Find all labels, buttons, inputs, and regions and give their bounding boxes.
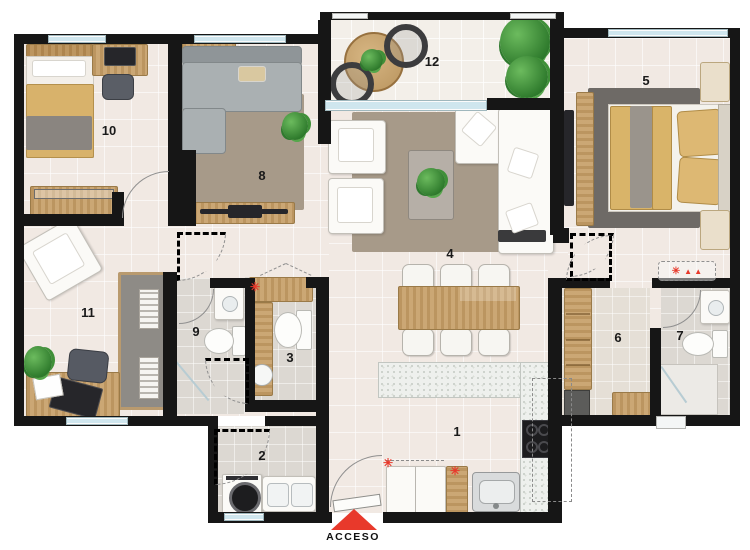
bath9-sink: [214, 286, 244, 320]
desk-monitor: [104, 47, 136, 66]
plant-study: [24, 346, 52, 378]
dining-chair-5: [440, 328, 472, 356]
bath7-toilet-tank: [712, 330, 728, 358]
room-label-10: 10: [97, 123, 121, 138]
window-bedroom-10: [48, 35, 106, 43]
access-arrow-icon: [331, 509, 377, 530]
laundry-sink: [262, 476, 316, 512]
wall: [24, 214, 122, 226]
window-study: [66, 417, 128, 425]
wall: [14, 34, 24, 426]
kitchen-sink: [472, 472, 520, 512]
wall: [163, 272, 177, 416]
wall: [210, 278, 247, 288]
sofa-pillow: [238, 66, 266, 82]
armchair-1-cushion: [338, 128, 374, 162]
wall: [553, 228, 569, 243]
wall: [168, 34, 182, 226]
bath9-toilet-tank: [232, 326, 246, 356]
window-balcony-left: [332, 13, 368, 19]
kitchen-counter-peninsula: [378, 362, 524, 398]
wall: [182, 150, 196, 226]
wall: [318, 20, 331, 144]
desk-chair-study: [66, 348, 109, 384]
bath9-basin: [222, 296, 238, 312]
shelf-divider: [566, 364, 590, 366]
wardrobe-shelves-bottom: [139, 357, 159, 399]
asterisk-icon: ✳: [250, 282, 260, 292]
dining-chair-4: [402, 328, 434, 356]
window-balcony-right: [510, 13, 556, 19]
nightstand-top: [700, 62, 730, 102]
wardrobe-study: [118, 272, 168, 410]
dining-chair-6: [478, 328, 510, 356]
wall: [650, 328, 661, 416]
tv-screen-5: [564, 110, 574, 206]
coffee-table-plant: [417, 168, 445, 196]
window-bedroom-5: [608, 29, 728, 37]
bed5-pillow-bottom: [676, 157, 723, 206]
wall: [316, 277, 329, 517]
wall: [550, 12, 564, 235]
window-bath-7: [656, 416, 686, 429]
wall: [306, 277, 316, 288]
tv-panel-bedroom-5: [576, 92, 594, 226]
room-label-11: 11: [76, 305, 100, 320]
room-label-7: 7: [668, 328, 692, 343]
asterisk-icon: ✳: [672, 266, 680, 277]
room-label-6: 6: [606, 330, 630, 345]
laundry-basin-2: [291, 483, 313, 507]
triangle-icons: ▲ ▲: [684, 267, 702, 276]
balcony-table-plant: [361, 49, 383, 71]
bed-throw: [26, 116, 92, 150]
wall: [548, 415, 740, 426]
shelf-divider: [566, 313, 590, 315]
bath3-toilet-bowl: [274, 312, 302, 348]
room-label-12: 12: [420, 54, 444, 69]
shelf-divider: [566, 339, 590, 341]
fridge-door-split: [415, 467, 416, 513]
bed-pillow: [32, 60, 86, 77]
room-label-1: 1: [445, 424, 469, 439]
laundry-basin-1: [267, 483, 289, 507]
room-label-4: 4: [438, 246, 462, 261]
wall: [383, 512, 557, 523]
nightstand-bottom: [700, 210, 730, 250]
asterisk-icon: ✳: [450, 466, 460, 476]
desk-chair-10: [102, 74, 134, 100]
wall: [487, 98, 563, 110]
bath7-sink: [700, 290, 730, 324]
room-label-3: 3: [278, 350, 302, 365]
balcony-big-plant-lower: [506, 56, 548, 98]
bath9-toilet-bowl: [204, 328, 234, 354]
floor-plan: ✳ ▲ ▲: [0, 0, 750, 550]
room-label-5: 5: [634, 73, 658, 88]
bath7-basin: [708, 300, 724, 316]
wall: [730, 28, 740, 425]
bed5-fold-tan: [652, 106, 672, 210]
plant-tv-room: [282, 112, 308, 140]
kitchen-sink-basin: [479, 480, 515, 504]
room-label-8: 8: [250, 168, 274, 183]
armchair-2-cushion: [337, 187, 373, 223]
optional-cabinet-marker: ✳ ▲ ▲: [658, 261, 716, 281]
window-tv-room: [194, 35, 286, 43]
tv-soundbar: [228, 205, 262, 218]
asterisk-icon: ✳: [383, 458, 393, 468]
room-label-2: 2: [250, 448, 274, 463]
closet-shelf-column: [564, 288, 592, 390]
room-label-9: 9: [184, 324, 208, 339]
closet-bench: [612, 392, 652, 416]
wardrobe-shelves-top: [139, 289, 159, 329]
fridge-overhead-dashed: [386, 460, 444, 465]
overhead-cabinet-dashed: [532, 378, 572, 502]
washer-drum: [229, 482, 261, 514]
access-label: ACCESO: [304, 531, 402, 543]
window-laundry: [224, 513, 264, 521]
dining-table-leaf: [460, 287, 516, 301]
sofa-gray-chaise: [182, 108, 226, 154]
bed5-pillow-top: [676, 109, 723, 158]
dresser-rail: [34, 189, 114, 199]
refrigerator: [386, 466, 446, 514]
bed5-fold-gray: [630, 106, 652, 208]
sideboard-console: [498, 230, 546, 242]
kitchen-faucet: [493, 503, 499, 509]
armchair-study-cushion: [32, 232, 86, 285]
sliding-door-balcony: [325, 100, 487, 111]
